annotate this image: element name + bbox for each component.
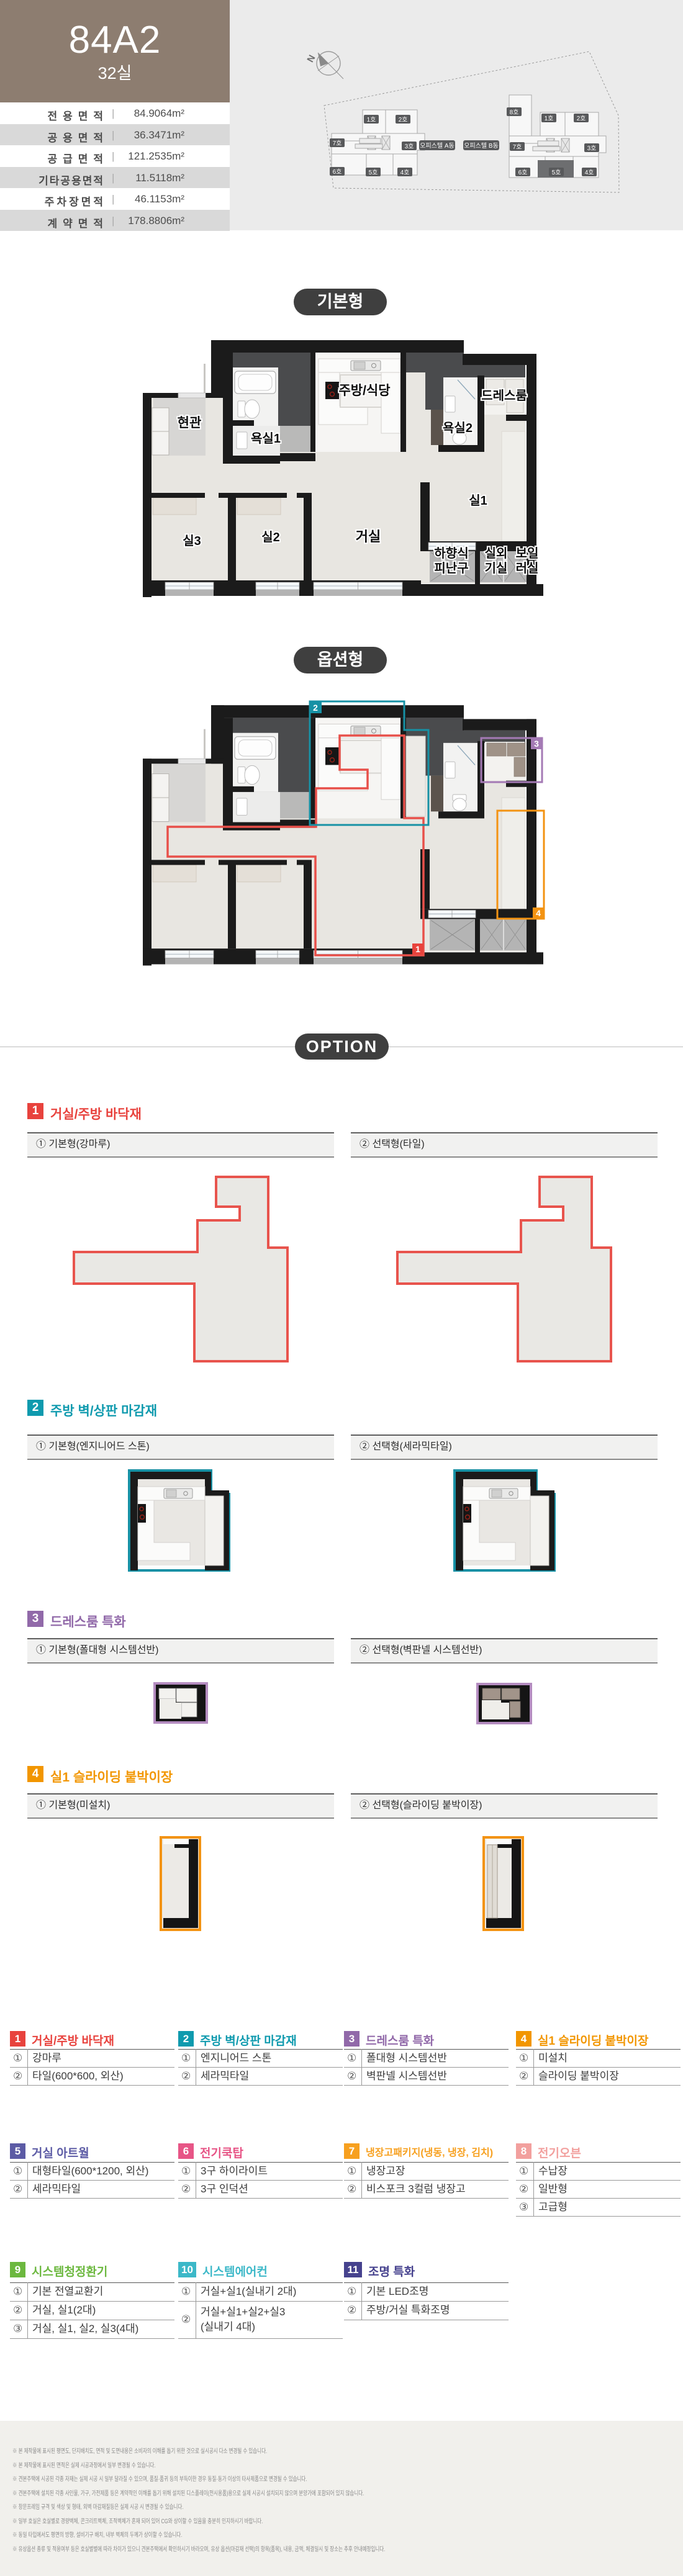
svg-text:3: 3 <box>534 739 539 749</box>
svg-text:오피스텔 B동: 오피스텔 B동 <box>464 142 498 150</box>
svg-text:기실: 기실 <box>485 561 508 575</box>
svg-text:7호: 7호 <box>333 140 342 147</box>
svg-text:2호: 2호 <box>399 116 408 124</box>
svg-text:드레스룸: 드레스룸 <box>481 389 527 403</box>
svg-text:욕실2: 욕실2 <box>443 421 473 435</box>
svg-text:실3: 실3 <box>183 534 201 548</box>
svg-text:2호: 2호 <box>577 115 586 122</box>
svg-text:3호: 3호 <box>405 143 414 150</box>
svg-text:3호: 3호 <box>587 145 597 152</box>
svg-text:러실: 러실 <box>516 561 539 575</box>
svg-text:1호: 1호 <box>545 115 554 122</box>
svg-text:1: 1 <box>415 944 420 954</box>
svg-text:4호: 4호 <box>400 169 410 176</box>
svg-text:현관: 현관 <box>178 416 202 430</box>
svg-text:거실: 거실 <box>356 529 381 544</box>
svg-text:4: 4 <box>536 908 541 918</box>
svg-text:N: N <box>305 53 317 65</box>
svg-text:실1: 실1 <box>469 493 487 508</box>
svg-text:6호: 6호 <box>333 168 342 176</box>
svg-text:하향식: 하향식 <box>434 546 468 561</box>
svg-text:8호: 8호 <box>510 109 519 116</box>
svg-text:5호: 5호 <box>552 169 561 176</box>
svg-text:피난구: 피난구 <box>434 561 468 575</box>
svg-text:주방/식당: 주방/식당 <box>338 384 390 398</box>
svg-text:실2: 실2 <box>261 530 280 544</box>
svg-text:실외: 실외 <box>485 546 508 561</box>
svg-text:7호: 7호 <box>513 143 522 151</box>
svg-text:6호: 6호 <box>518 169 528 176</box>
svg-text:오피스텔 A동: 오피스텔 A동 <box>420 142 454 150</box>
svg-text:1호: 1호 <box>367 116 376 124</box>
svg-text:2: 2 <box>313 703 318 713</box>
svg-text:욕실1: 욕실1 <box>251 431 281 446</box>
svg-text:5호: 5호 <box>369 169 378 176</box>
svg-text:4호: 4호 <box>585 169 594 176</box>
svg-text:보일: 보일 <box>516 546 539 561</box>
